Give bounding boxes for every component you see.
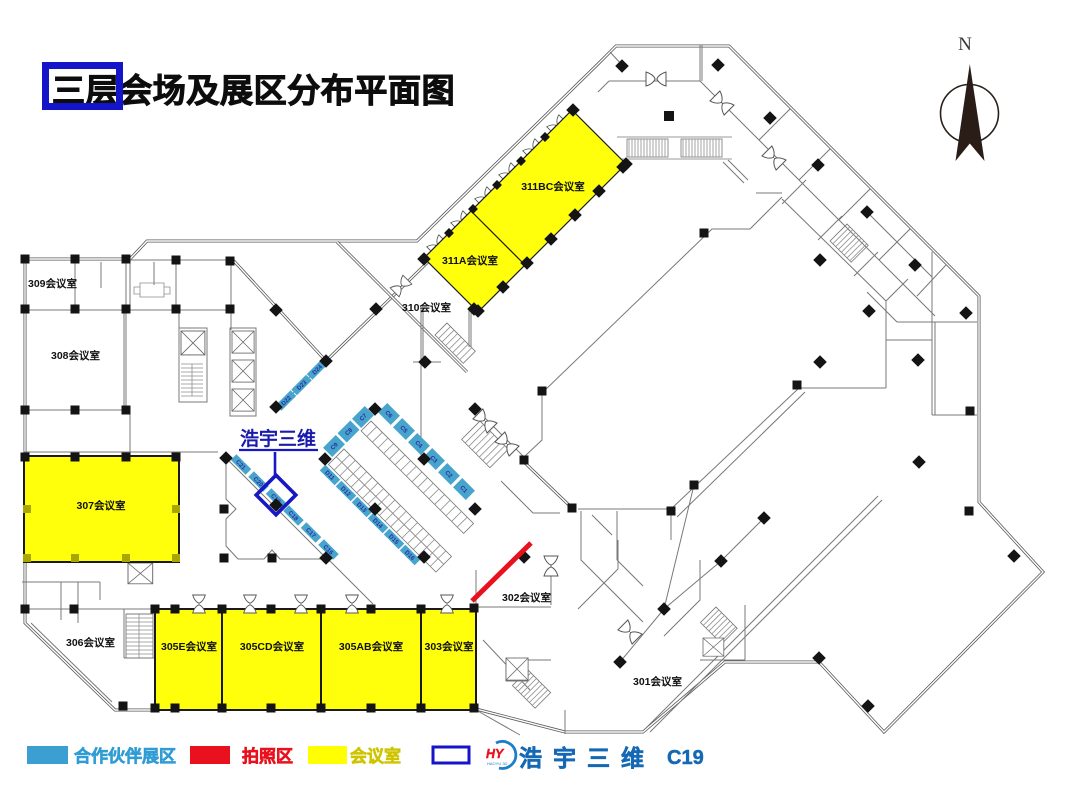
svg-text:306会议室: 306会议室 <box>66 636 116 649</box>
svg-text:合作伙伴展区: 合作伙伴展区 <box>74 746 176 766</box>
svg-text:拍照区: 拍照区 <box>242 746 293 766</box>
svg-text:311BC会议室: 311BC会议室 <box>521 180 585 193</box>
svg-text:305AB会议室: 305AB会议室 <box>339 640 404 653</box>
svg-text:308会议室: 308会议室 <box>51 349 101 362</box>
svg-text:浩宇三维: 浩宇三维 <box>240 427 316 450</box>
svg-text:HAOYU 3D: HAOYU 3D <box>487 761 508 766</box>
svg-text:浩宇三维: 浩宇三维 <box>519 745 655 771</box>
svg-text:305CD会议室: 305CD会议室 <box>240 640 305 653</box>
svg-text:305E会议室: 305E会议室 <box>161 640 218 653</box>
svg-text:307会议室: 307会议室 <box>76 499 126 512</box>
svg-text:302会议室: 302会议室 <box>502 591 552 604</box>
svg-text:C19: C19 <box>667 747 704 769</box>
svg-text:会议室: 会议室 <box>350 746 401 766</box>
svg-text:311A会议室: 311A会议室 <box>442 254 499 267</box>
svg-text:303会议室: 303会议室 <box>424 640 474 653</box>
svg-text:N: N <box>958 34 972 55</box>
svg-text:309会议室: 309会议室 <box>28 277 78 290</box>
svg-text:HY: HY <box>486 747 505 761</box>
svg-text:310会议室: 310会议室 <box>402 301 452 314</box>
svg-text:301会议室: 301会议室 <box>633 675 683 688</box>
